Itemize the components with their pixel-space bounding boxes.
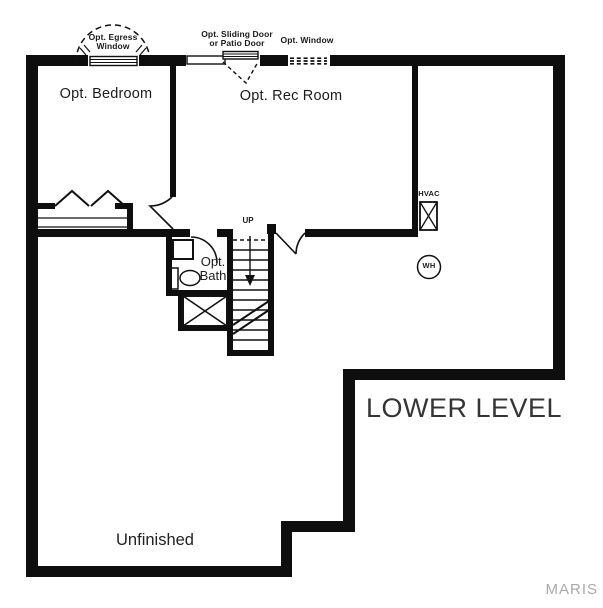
wall-closet-stub-left [37, 203, 55, 209]
unfinished-label: Unfinished [108, 531, 202, 549]
bedroom-door [150, 197, 173, 229]
wall-stair-bottom [227, 350, 274, 356]
wall-step-top [343, 369, 565, 380]
wall-left [26, 55, 38, 577]
rec-room-door [276, 233, 305, 254]
wall-bedroom-rec [170, 66, 176, 197]
storage-area [183, 296, 227, 326]
exterior-walls [26, 55, 565, 577]
wall-bedroom-bottom [26, 229, 190, 237]
wall-rec-bottom [305, 229, 418, 237]
interior-walls [26, 66, 418, 356]
bifold-door-left [55, 191, 89, 206]
wall-bath-left [166, 237, 172, 296]
wall-bottom [26, 566, 292, 577]
egress-window-label: Opt. Egress Window [70, 33, 156, 52]
rec-room-label: Opt. Rec Room [229, 89, 353, 105]
water-heater-label: WH [417, 262, 441, 270]
wall-stair-cap [267, 224, 276, 234]
wall-step-horizontal [281, 521, 355, 532]
wall-stair-right [268, 229, 274, 356]
staircase [233, 236, 272, 340]
sink [173, 240, 193, 259]
watermark: MARIS [538, 582, 598, 599]
hvac-label: HVAC [413, 190, 445, 198]
wall-rec-right [412, 66, 418, 237]
wall-step-vertical [343, 369, 355, 532]
sliding-door-label: Opt. Sliding Door or Patio Door [186, 30, 288, 49]
bedroom-label: Opt. Bedroom [45, 87, 167, 103]
sliding-door-symbol [187, 52, 258, 84]
wall-closet-return [127, 203, 133, 229]
opt-window-label: Opt. Window [275, 36, 339, 45]
bath-label: Opt. Bath [196, 255, 230, 282]
stairs-up-label: UP [237, 217, 259, 226]
hvac-unit [420, 202, 437, 230]
wall-right [553, 55, 565, 380]
floor-plan: Opt. Egress Window Opt. Sliding Door or … [0, 0, 603, 608]
floor-title: LOWER LEVEL [366, 394, 562, 424]
